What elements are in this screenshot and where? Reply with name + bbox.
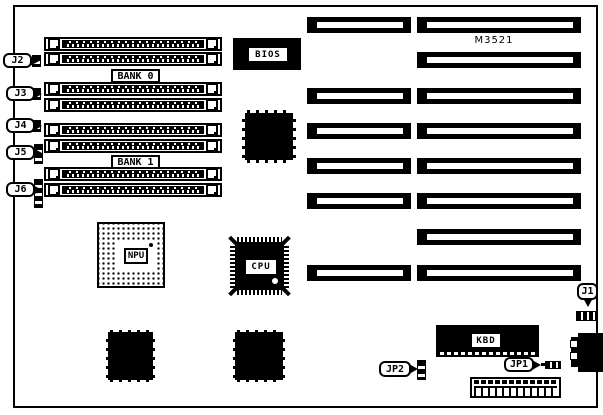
callout-j3-label: J3 — [14, 88, 26, 99]
simm-slot — [44, 82, 222, 96]
simm-clip-icon — [206, 140, 218, 152]
simm-contacts — [62, 126, 204, 134]
simm-slot — [44, 123, 222, 137]
isa-slot-long — [417, 52, 581, 68]
isa-slot-short — [307, 17, 411, 33]
simm-clip-icon — [48, 184, 60, 196]
callout-j5-label: J5 — [14, 147, 26, 158]
simm-slot — [44, 139, 222, 153]
simm-contacts — [62, 85, 204, 93]
simm-contacts — [62, 186, 204, 194]
simm-clip-icon — [48, 83, 60, 95]
simm-clip-icon — [206, 83, 218, 95]
isa-slot-short — [307, 193, 411, 209]
callout-j4: J4 — [6, 118, 35, 133]
bios-chip: BIOS — [233, 38, 301, 70]
simm-clip-icon — [48, 53, 60, 65]
isa-slot-long — [417, 265, 581, 281]
jumper-jp2 — [417, 360, 426, 380]
simm-clip-icon — [206, 184, 218, 196]
callout-j1: J1 — [577, 283, 598, 300]
callout-j6-label: J6 — [14, 184, 26, 195]
callout-jp1-label: JP1 — [510, 359, 528, 370]
isa-slot-short — [307, 158, 411, 174]
arrow-right-icon — [30, 56, 39, 66]
arrow-right-icon — [532, 360, 541, 370]
arrow-right-icon — [33, 185, 42, 195]
simm-contacts — [62, 142, 204, 150]
power-connector — [470, 377, 561, 398]
callout-j5: J5 — [6, 145, 35, 160]
callout-jp1: JP1 — [504, 357, 534, 372]
pin1-dot-icon — [272, 278, 278, 284]
simm-clip-icon — [206, 99, 218, 111]
simm-slot — [44, 167, 222, 181]
simm-clip-icon — [206, 124, 218, 136]
arrow-right-icon — [33, 89, 42, 99]
simm-contacts — [62, 40, 204, 48]
ic-chip-2 — [233, 330, 285, 382]
callout-j2: J2 — [3, 53, 32, 68]
simm-clip-icon — [48, 140, 60, 152]
arrow-right-icon — [409, 364, 418, 374]
jumper-jp1 — [545, 361, 561, 369]
keyboard-din-connector — [578, 333, 603, 372]
isa-slot-short — [307, 265, 411, 281]
simm-contacts — [62, 101, 204, 109]
simm-slot — [44, 183, 222, 197]
kbd-label: KBD — [472, 334, 500, 347]
callout-j2-label: J2 — [11, 55, 23, 66]
cpu-chip: CPU — [230, 237, 289, 295]
isa-slot-long — [417, 88, 581, 104]
simm-clip-icon — [48, 168, 60, 180]
simm-clip-icon — [48, 99, 60, 111]
arrow-right-icon — [33, 148, 42, 158]
pin-header-j1 — [576, 311, 598, 321]
bank0-label: BANK 0 — [111, 69, 160, 83]
keyboard-controller-chip: KBD — [436, 325, 539, 357]
pin1-dot-icon — [149, 243, 153, 247]
power-pins-bottom — [474, 386, 557, 397]
isa-slot-short — [307, 123, 411, 139]
npu-socket: NPU — [97, 222, 165, 288]
chip-body — [108, 332, 153, 380]
simm-clip-icon — [48, 124, 60, 136]
chip-body — [235, 332, 283, 380]
chip-pins-icon — [237, 290, 282, 295]
ic-chip-1 — [106, 330, 155, 382]
simm-clip-icon — [206, 168, 218, 180]
callout-j4-label: J4 — [14, 120, 26, 131]
callout-j1-label: J1 — [581, 286, 593, 297]
isa-slot-short — [307, 88, 411, 104]
dip-legs-icon — [440, 352, 535, 355]
npu-label: NPU — [124, 248, 148, 264]
din-mount-hole-icon — [570, 352, 578, 360]
arrow-right-icon — [33, 121, 42, 131]
simm-slot — [44, 37, 222, 51]
bank1-label: BANK 1 — [111, 155, 160, 169]
simm-clip-icon — [48, 38, 60, 50]
simm-slot — [44, 52, 222, 66]
chipset-chip — [242, 110, 296, 163]
bios-label: BIOS — [249, 48, 287, 61]
simm-slot — [44, 98, 222, 112]
simm-contacts — [62, 170, 204, 178]
motherboard-diagram: BANK 0 BANK 1 J2 J3 J4 J5 J6 BIOS NPU — [0, 0, 603, 415]
callout-j3: J3 — [6, 86, 35, 101]
isa-slot-long — [417, 123, 581, 139]
din-mount-hole-icon — [570, 340, 578, 348]
simm-contacts — [62, 55, 204, 63]
npu-center: NPU — [117, 241, 155, 271]
chip-pins-icon — [284, 244, 289, 288]
isa-slot-long — [417, 193, 581, 209]
callout-j6: J6 — [6, 182, 35, 197]
arrow-down-icon — [583, 298, 593, 307]
simm-clip-icon — [206, 38, 218, 50]
model-label: M3521 — [474, 35, 514, 46]
isa-slot-long — [417, 158, 581, 174]
simm-clip-icon — [206, 53, 218, 65]
isa-slot-long — [417, 229, 581, 245]
callout-jp2: JP2 — [379, 361, 411, 377]
callout-jp2-label: JP2 — [386, 364, 404, 375]
cpu-label: CPU — [244, 258, 278, 276]
power-pins-top — [474, 380, 557, 384]
isa-slot-long — [417, 17, 581, 33]
chip-body — [245, 113, 293, 160]
